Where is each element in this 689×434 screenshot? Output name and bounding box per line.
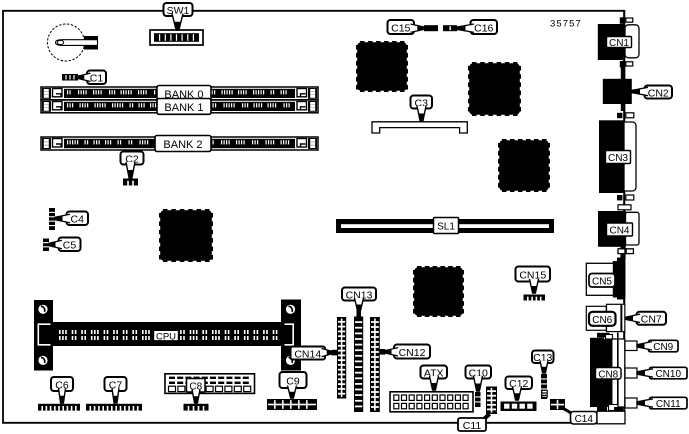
svg-text:35757: 35757	[550, 19, 582, 30]
svg-text:C5: C5	[63, 240, 77, 252]
svg-text:CN3: CN3	[608, 153, 628, 164]
svg-text:CN8: CN8	[598, 369, 618, 380]
svg-text:CPU: CPU	[156, 331, 176, 342]
svg-text:C16: C16	[474, 22, 493, 34]
svg-text:C9: C9	[286, 375, 300, 387]
svg-text:CN12: CN12	[399, 347, 426, 359]
svg-text:BANK 1: BANK 1	[164, 102, 203, 114]
svg-text:C11: C11	[463, 420, 482, 432]
svg-text:BANK 2: BANK 2	[163, 139, 202, 151]
svg-text:C14: C14	[575, 414, 594, 425]
svg-text:CN14: CN14	[294, 348, 321, 360]
svg-text:CN10: CN10	[655, 369, 681, 380]
svg-text:C4: C4	[71, 214, 85, 226]
svg-text:CN4: CN4	[609, 226, 629, 237]
svg-text:CN5: CN5	[592, 276, 612, 287]
svg-text:CN2: CN2	[648, 87, 669, 99]
svg-text:CN11: CN11	[656, 399, 681, 410]
svg-text:CN7: CN7	[641, 314, 662, 326]
svg-text:SL1: SL1	[437, 222, 455, 233]
svg-text:CN1: CN1	[609, 38, 629, 49]
svg-text:CN9: CN9	[653, 342, 673, 353]
svg-text:CN6: CN6	[592, 315, 612, 326]
svg-text:C15: C15	[391, 22, 410, 34]
svg-text:C1: C1	[90, 73, 104, 85]
